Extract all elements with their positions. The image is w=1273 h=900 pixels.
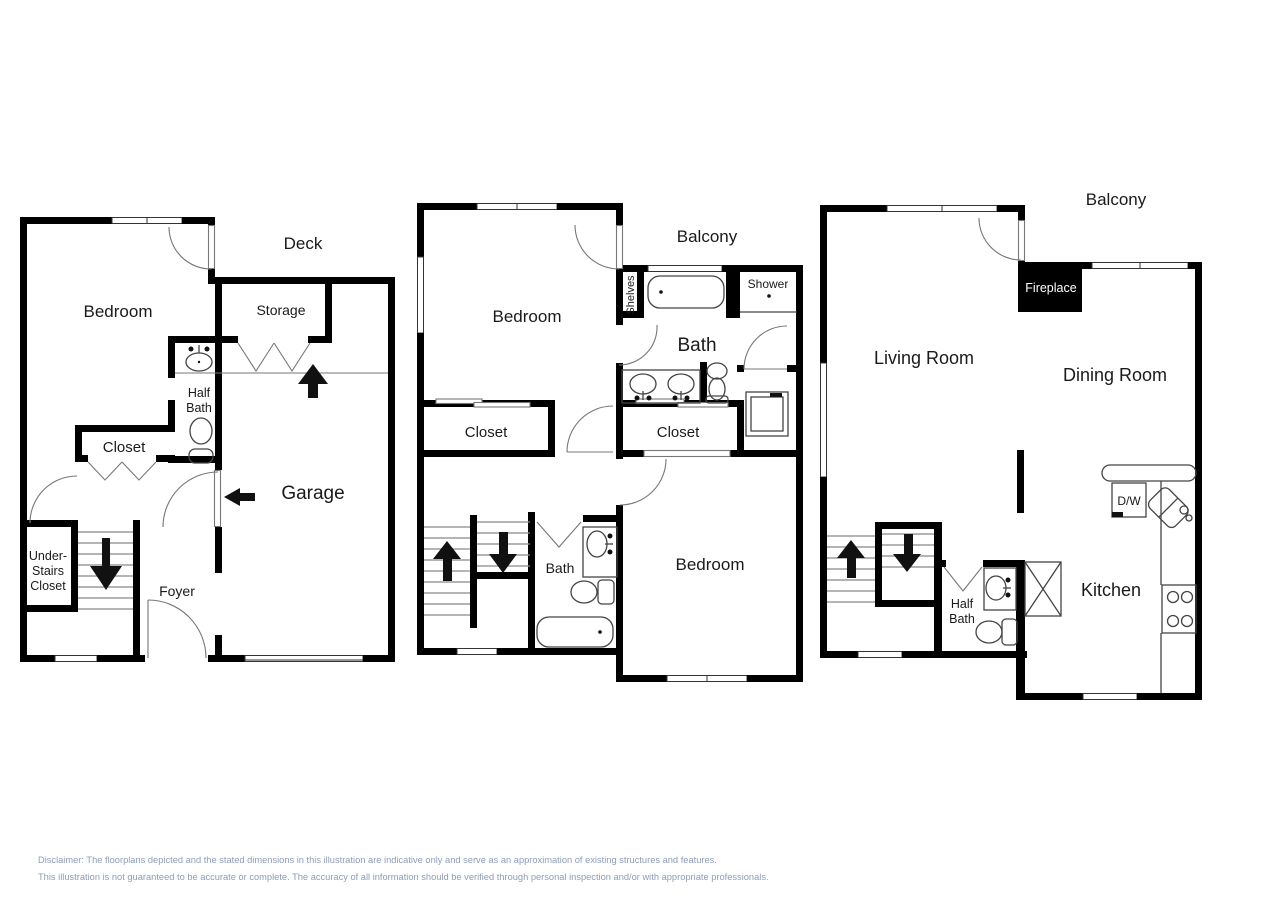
floor1-fixtures xyxy=(175,345,388,506)
closet-opening xyxy=(644,451,730,457)
entry-door-arc xyxy=(148,600,206,658)
door-arc xyxy=(620,459,666,505)
room-label-fireplace: Fireplace xyxy=(1025,281,1076,295)
garage-door xyxy=(245,656,363,662)
down-arrow-icon xyxy=(893,534,921,572)
door-arc xyxy=(619,325,657,365)
room-label-foyer: Foyer xyxy=(159,583,195,599)
room-label-bath-lower: Bath xyxy=(546,560,575,576)
bifold-door xyxy=(238,343,274,371)
room-label-garage: Garage xyxy=(281,483,344,504)
floor3-fixtures xyxy=(976,465,1196,693)
down-arrow-icon xyxy=(90,538,122,590)
floor-plan-3: Balcony Fireplace Living Room Dining Roo… xyxy=(820,190,1202,700)
room-label-shelves: Shelves xyxy=(625,275,637,315)
room-label-deck: Deck xyxy=(284,234,323,253)
room-label-half-bath: Half xyxy=(951,597,974,611)
room-label-shower: Shower xyxy=(748,277,789,291)
bifold-door xyxy=(274,343,310,371)
sink-icon xyxy=(186,345,212,371)
door-leaf xyxy=(1019,221,1025,261)
room-label-balcony: Balcony xyxy=(677,227,738,246)
window xyxy=(858,652,902,658)
window xyxy=(821,363,827,477)
sliding-door xyxy=(474,403,530,408)
disclaimer-line-1: Disclaimer: The floorplans depicted and … xyxy=(38,852,769,869)
window xyxy=(648,266,722,272)
room-label-bedroom: Bedroom xyxy=(84,302,153,321)
kitchen-counter xyxy=(1102,465,1196,693)
floor2-walls xyxy=(417,203,803,682)
door-leaf xyxy=(209,226,215,269)
disclaimer: Disclaimer: The floorplans depicted and … xyxy=(38,852,769,885)
door-leaf xyxy=(617,226,623,269)
floor3-walls xyxy=(820,205,1202,700)
room-label-dishwasher: D/W xyxy=(1117,494,1141,508)
room-label-under-stairs-closet: Closet xyxy=(30,579,66,593)
room-label-living-room: Living Room xyxy=(874,348,974,368)
floor-plan-1: Bedroom Deck Storage Half Bath Closet Un… xyxy=(20,217,395,662)
floor1-stairs xyxy=(78,532,133,609)
room-label-half-bath: Half xyxy=(188,386,211,400)
bifold-door xyxy=(944,567,982,591)
bifold-door xyxy=(537,522,581,547)
floorplan-canvas: Bedroom Deck Storage Half Bath Closet Un… xyxy=(0,0,1273,900)
up-arrow-icon xyxy=(433,541,461,581)
toilet-icon xyxy=(706,363,728,403)
up-arrow-icon xyxy=(837,540,865,578)
room-label-storage: Storage xyxy=(256,302,305,318)
room-label-closet-left: Closet xyxy=(465,424,508,441)
room-label-half-bath: Bath xyxy=(186,401,212,415)
room-label-under-stairs-closet: Under- xyxy=(29,549,67,563)
room-label-kitchen: Kitchen xyxy=(1081,580,1141,600)
room-label-under-stairs-closet: Stairs xyxy=(32,564,64,578)
double-sink-icon xyxy=(622,370,700,403)
window xyxy=(55,656,97,662)
room-label-bath-upper: Bath xyxy=(677,335,716,356)
sink-icon xyxy=(984,568,1016,610)
door-leaf xyxy=(215,471,221,527)
room-label-closet-right: Closet xyxy=(657,424,700,441)
down-arrow-icon xyxy=(489,532,517,573)
room-label-dining-room: Dining Room xyxy=(1063,365,1167,385)
room-label-half-bath: Bath xyxy=(949,612,975,626)
toilet-icon xyxy=(571,580,614,604)
room-label-bedroom-upper: Bedroom xyxy=(493,307,562,326)
bathtub-icon xyxy=(648,276,724,308)
door-arc xyxy=(567,406,613,452)
stove-icon xyxy=(1162,585,1196,633)
window xyxy=(1083,694,1137,700)
linen-closet xyxy=(746,392,788,436)
floorplan-page: Bedroom Deck Storage Half Bath Closet Un… xyxy=(0,0,1273,900)
door-arc xyxy=(163,472,218,527)
pantry-box xyxy=(1025,562,1061,616)
window xyxy=(457,649,497,655)
bifold-door xyxy=(88,462,122,480)
floor3-doors xyxy=(944,218,1025,591)
bathtub-icon xyxy=(537,617,613,647)
room-label-closet: Closet xyxy=(103,439,146,456)
sink-icon xyxy=(583,527,617,577)
window xyxy=(418,257,424,333)
room-label-balcony: Balcony xyxy=(1086,190,1147,209)
up-arrow-icon xyxy=(298,364,328,398)
shower-icon xyxy=(740,294,797,312)
left-arrow-icon xyxy=(224,488,255,506)
room-label-bedroom-lower: Bedroom xyxy=(676,555,745,574)
floor1-walls xyxy=(20,217,395,662)
toilet-icon xyxy=(976,619,1017,645)
door-arc xyxy=(979,218,1021,260)
kitchen-sink-icon xyxy=(1146,485,1192,530)
door-arc xyxy=(744,326,787,369)
door-arc xyxy=(575,225,619,269)
disclaimer-line-2: This illustration is not guaranteed to b… xyxy=(38,869,769,886)
door-arc xyxy=(30,476,77,523)
door-arc xyxy=(169,227,211,269)
floor2-fixtures xyxy=(537,276,797,647)
floor-plan-2: Bedroom Balcony Shelves Shower Bath Clos… xyxy=(417,203,803,682)
bifold-door xyxy=(122,462,156,480)
